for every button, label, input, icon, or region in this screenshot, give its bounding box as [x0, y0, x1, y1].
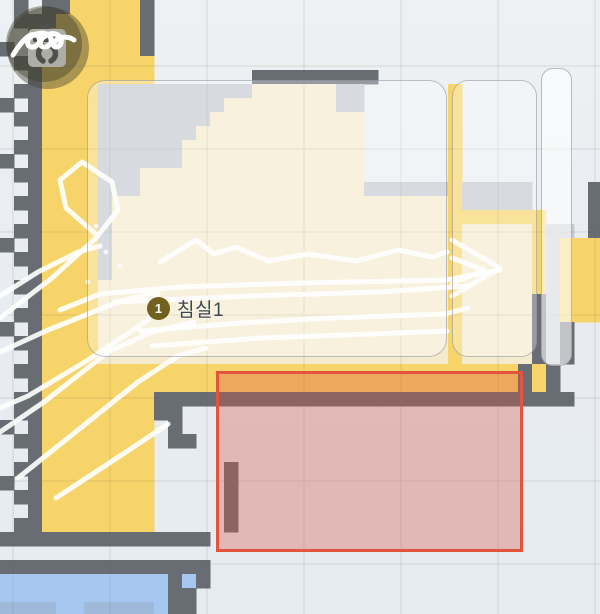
map-viewport[interactable]: 1 침실1 — [0, 0, 600, 614]
room-overlay-narrow[interactable] — [541, 68, 572, 366]
room-number-badge: 1 — [147, 297, 170, 320]
restricted-zone-rectangle[interactable] — [216, 371, 523, 552]
robot-cleaning-path-icon[interactable] — [0, 0, 88, 88]
room-overlay-bedroom1[interactable] — [87, 80, 447, 357]
room-name-text: 침실1 — [177, 295, 224, 322]
room-overlay-right[interactable] — [452, 80, 537, 357]
room-label[interactable]: 1 침실1 — [147, 295, 224, 322]
